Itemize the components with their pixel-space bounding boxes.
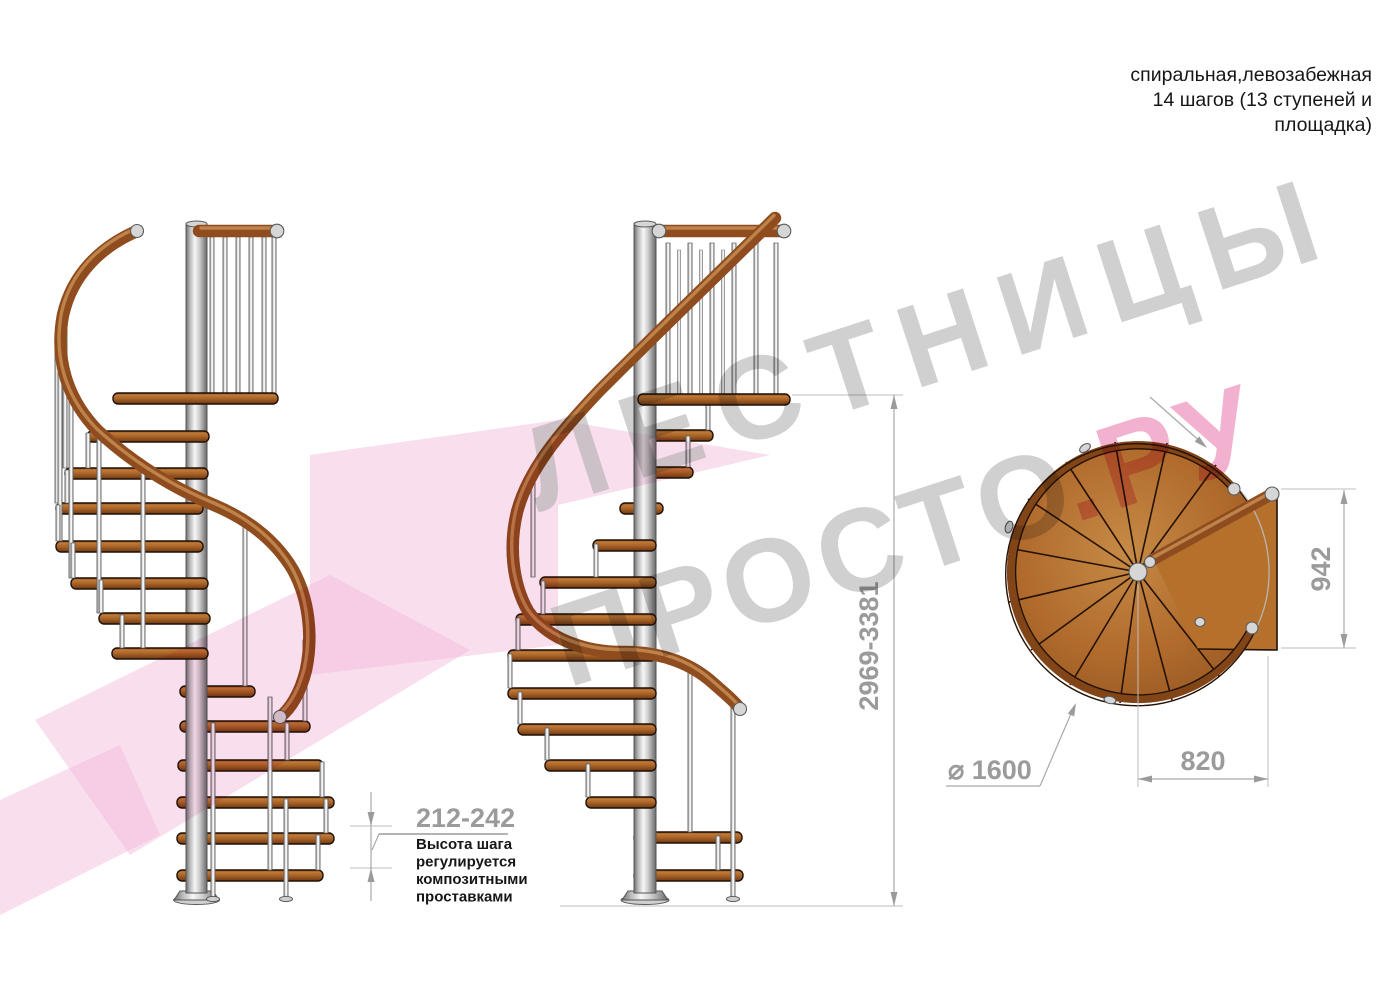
title-line-2: 14 шагов (13 ступеней и <box>1153 89 1372 111</box>
landing-width-value: 820 <box>1180 746 1225 776</box>
arrowhead-up-right-icon <box>1068 703 1076 716</box>
baluster-foot <box>727 896 740 901</box>
tread <box>56 503 203 514</box>
arrowhead-up-icon <box>1341 490 1348 504</box>
arrowhead-down-icon <box>368 812 375 826</box>
tread <box>545 760 656 771</box>
landing-platform <box>113 393 278 404</box>
pole-top <box>634 221 656 227</box>
note-line-3: композитными <box>416 871 528 888</box>
dimension-landing-depth: 942 <box>1281 489 1356 648</box>
note-block: Высота шага регулируется композитными пр… <box>416 836 528 906</box>
handrail-cap <box>131 225 144 238</box>
baluster-top <box>1195 618 1205 627</box>
handrail-cap <box>734 703 747 716</box>
handrail-cap <box>1246 622 1258 634</box>
note-line-4: проставками <box>416 889 513 906</box>
arrowhead-down-icon <box>891 892 898 906</box>
tread <box>99 613 210 624</box>
handrail-cap <box>652 224 666 238</box>
drawing-canvas: 2969-3381 942 820 ⌀ 1600 212-242 <box>0 0 1400 1000</box>
rail-connector <box>1145 557 1156 568</box>
baluster-foot <box>280 896 293 901</box>
handrail-cap <box>777 224 791 238</box>
tread <box>586 797 656 808</box>
title-block: спиральная,левозабежная 14 шагов (13 сту… <box>1130 64 1372 136</box>
staircase-drawing: 2969-3381 942 820 ⌀ 1600 212-242 <box>0 0 1400 1000</box>
note-line-1: Высота шага <box>416 836 513 853</box>
arrowhead-right-icon <box>1254 776 1268 783</box>
step-height-value: 212-242 <box>416 803 515 833</box>
tread <box>71 578 208 589</box>
arrowhead-down-icon <box>1341 634 1348 648</box>
arrowhead-left-icon <box>1138 776 1152 783</box>
tread <box>56 541 203 552</box>
note-line-2: регулируется <box>416 854 516 871</box>
title-line-1: спиральная,левозабежная <box>1130 64 1372 86</box>
handrail-cap <box>1265 487 1279 501</box>
tread <box>593 540 656 551</box>
pole-top-view <box>1129 563 1147 581</box>
tread <box>518 724 656 735</box>
title-line-3: площадка) <box>1274 114 1372 136</box>
arrowhead-up-icon <box>368 868 375 882</box>
handrail-cap <box>270 224 284 238</box>
diameter-value: ⌀ 1600 <box>948 755 1032 785</box>
dimension-diameter: ⌀ 1600 <box>946 703 1076 786</box>
landing-depth-value: 942 <box>1306 546 1336 591</box>
baluster-foot <box>207 896 220 901</box>
